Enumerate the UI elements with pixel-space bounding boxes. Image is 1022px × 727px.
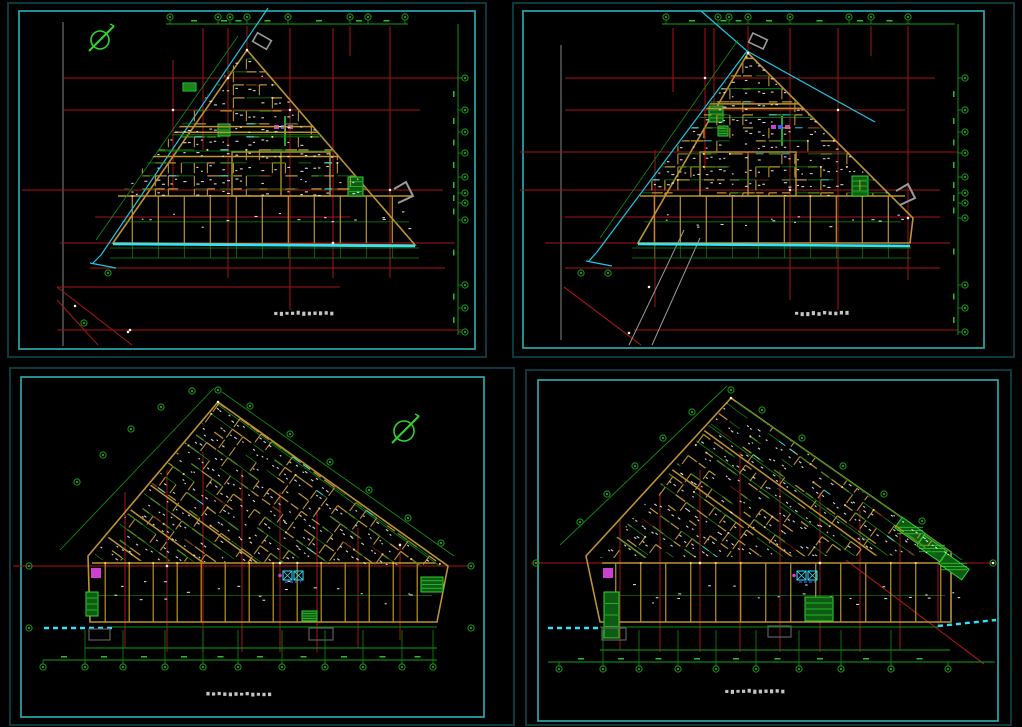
floor-plan-top-right-title	[795, 311, 849, 316]
floor-plan-top-right[interactable]	[513, 3, 1014, 357]
floor-plan-top-left-north-arrow-icon	[89, 24, 114, 51]
floor-plan-top-left-title	[274, 311, 333, 316]
floor-plan-bottom-left-north-arrow-icon	[392, 414, 419, 443]
floor-plan-bottom-right-plan-interior	[515, 357, 978, 727]
floor-plan-bottom-right-linework	[531, 386, 998, 672]
floor-plan-bottom-right[interactable]	[515, 357, 1011, 727]
floor-plan-top-left-linework	[22, 8, 468, 346]
floor-plan-top-right-linework	[520, 11, 968, 345]
floor-plan-top-right-frame-inner	[523, 11, 984, 348]
floor-plan-bottom-left[interactable]	[10, 214, 543, 725]
floor-plan-top-left-plan-interior	[90, 0, 402, 232]
cad-sheet	[0, 0, 1022, 727]
cad-canvas	[0, 0, 1022, 727]
floor-plan-top-left[interactable]	[8, 0, 486, 357]
floor-plan-top-left-frame-inner	[19, 11, 475, 349]
floor-plan-top-right-plan-interior	[613, 36, 918, 244]
floor-plan-bottom-left-title	[206, 692, 271, 697]
floor-plan-bottom-right-title	[725, 689, 784, 694]
